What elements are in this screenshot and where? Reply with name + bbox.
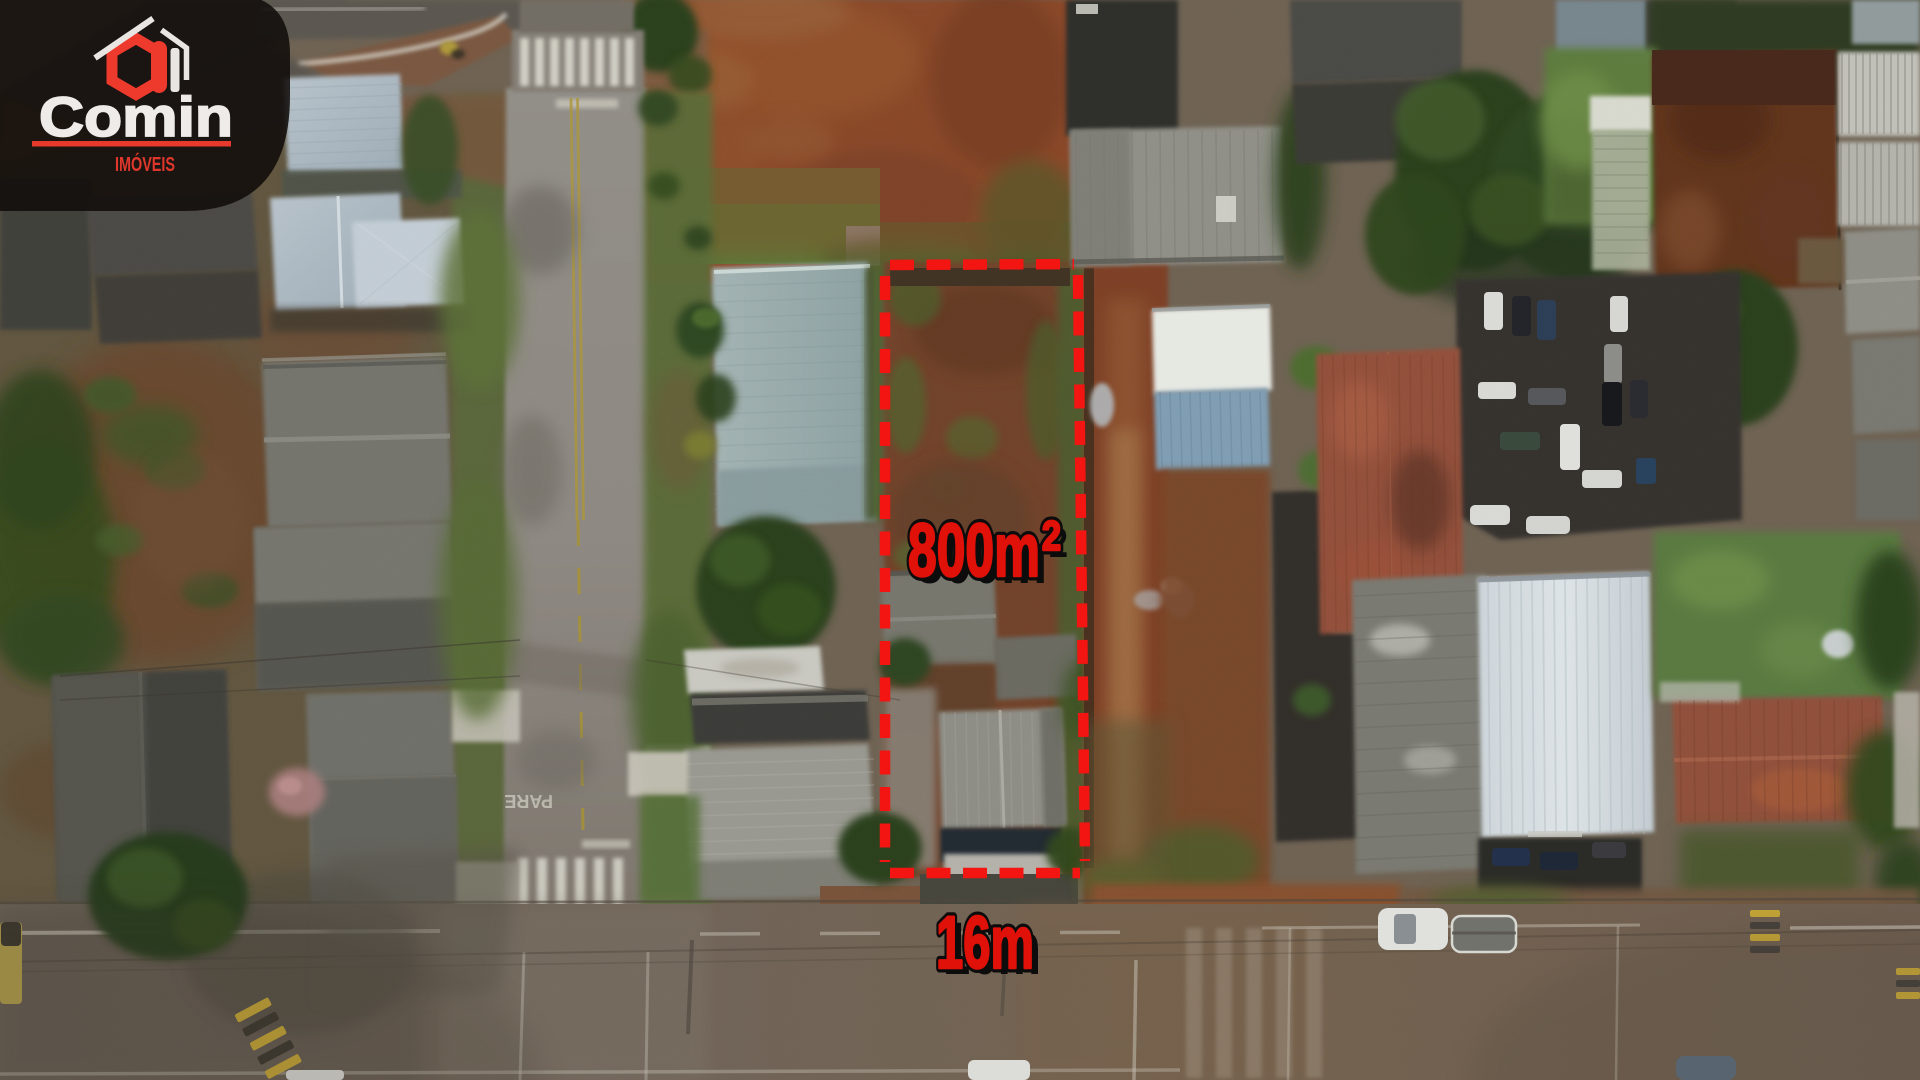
svg-text:Comin: Comin bbox=[39, 85, 233, 148]
svg-text:IMÓVEIS: IMÓVEIS bbox=[115, 152, 175, 176]
